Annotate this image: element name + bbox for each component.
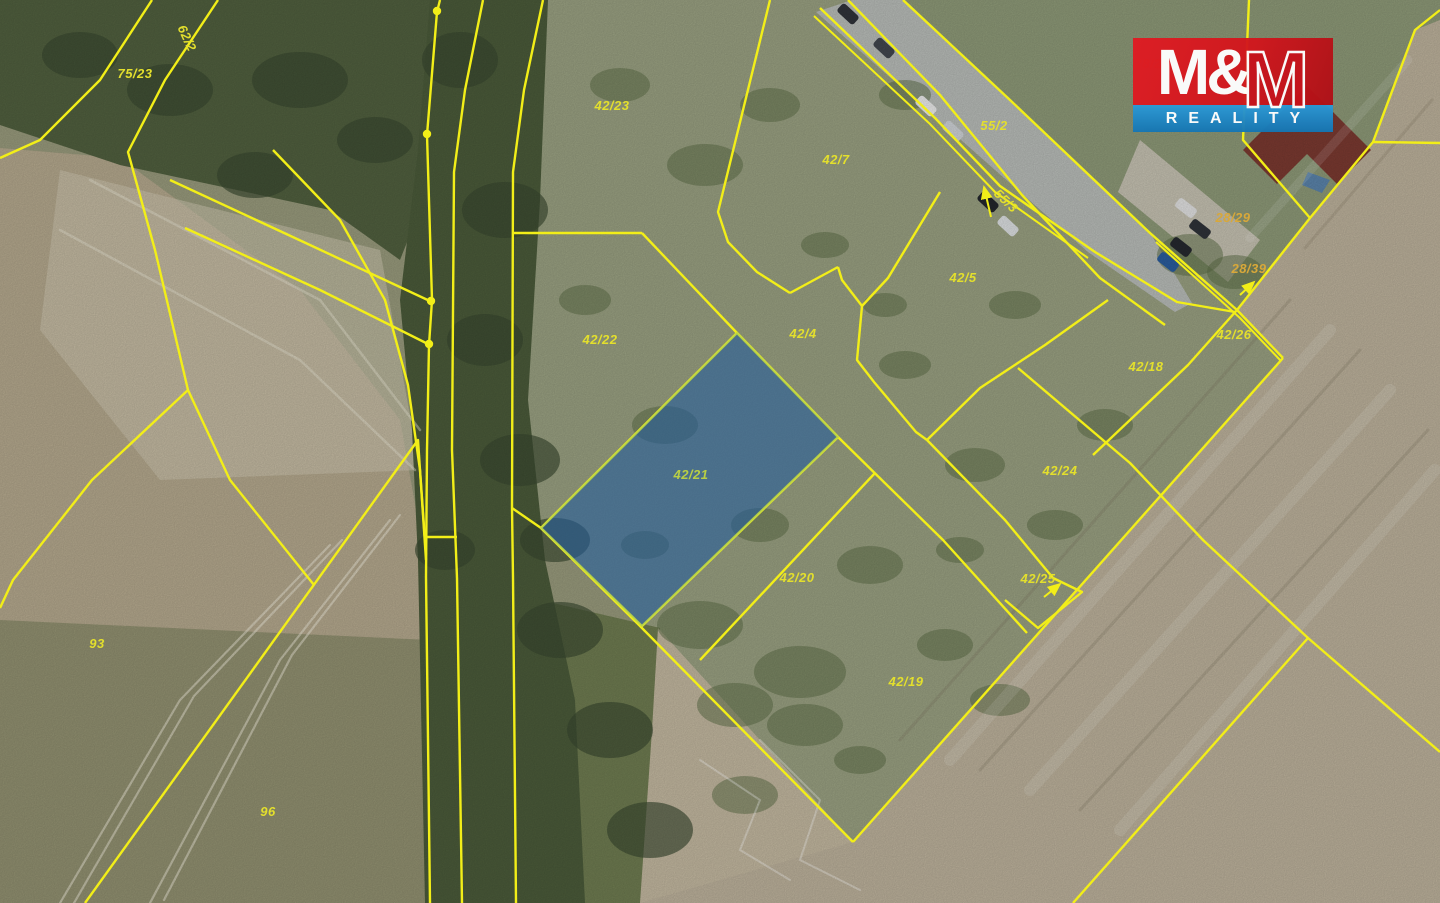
parcel-label: 42/19: [887, 674, 923, 689]
parcel-label: 42/4: [788, 326, 817, 341]
parcel-label: 96: [260, 804, 276, 819]
parcel-label: 42/25: [1019, 571, 1055, 586]
parcel-label: 42/20: [778, 570, 814, 585]
parcel-label: 42/22: [581, 332, 617, 347]
map-screenshot: 75/2362/242/2342/755/255/342/542/2242/44…: [0, 0, 1440, 903]
parcel-label: 93: [89, 636, 105, 651]
logo-m1-text: M&: [1157, 40, 1249, 104]
logo-red-box: M& M: [1133, 38, 1333, 105]
mm-reality-logo: M& M REALITY: [1133, 38, 1333, 132]
boundary-node: [427, 297, 435, 305]
parcel-label: 28/39: [1230, 261, 1266, 276]
parcel-label: 75/23: [117, 66, 152, 81]
cadastral-map[interactable]: 75/2362/242/2342/755/255/342/542/2242/44…: [0, 0, 1440, 903]
parcel-label: 42/18: [1127, 359, 1163, 374]
parcel-label: 28/29: [1214, 210, 1250, 225]
parcel-label: 42/23: [593, 98, 629, 113]
parcel-boundary: [1373, 142, 1440, 143]
parcel-label: 42/24: [1041, 463, 1077, 478]
boundary-node: [425, 340, 433, 348]
boundary-node: [433, 7, 441, 15]
parcel-label: 42/21: [672, 467, 708, 482]
parcel-label: 42/7: [821, 152, 850, 167]
parcel-label: 55/2: [980, 118, 1008, 133]
parcel-label: 42/26: [1215, 327, 1251, 342]
logo-m2-text: M: [1242, 40, 1309, 120]
parcel-label: 42/5: [948, 270, 977, 285]
boundary-node: [423, 130, 431, 138]
